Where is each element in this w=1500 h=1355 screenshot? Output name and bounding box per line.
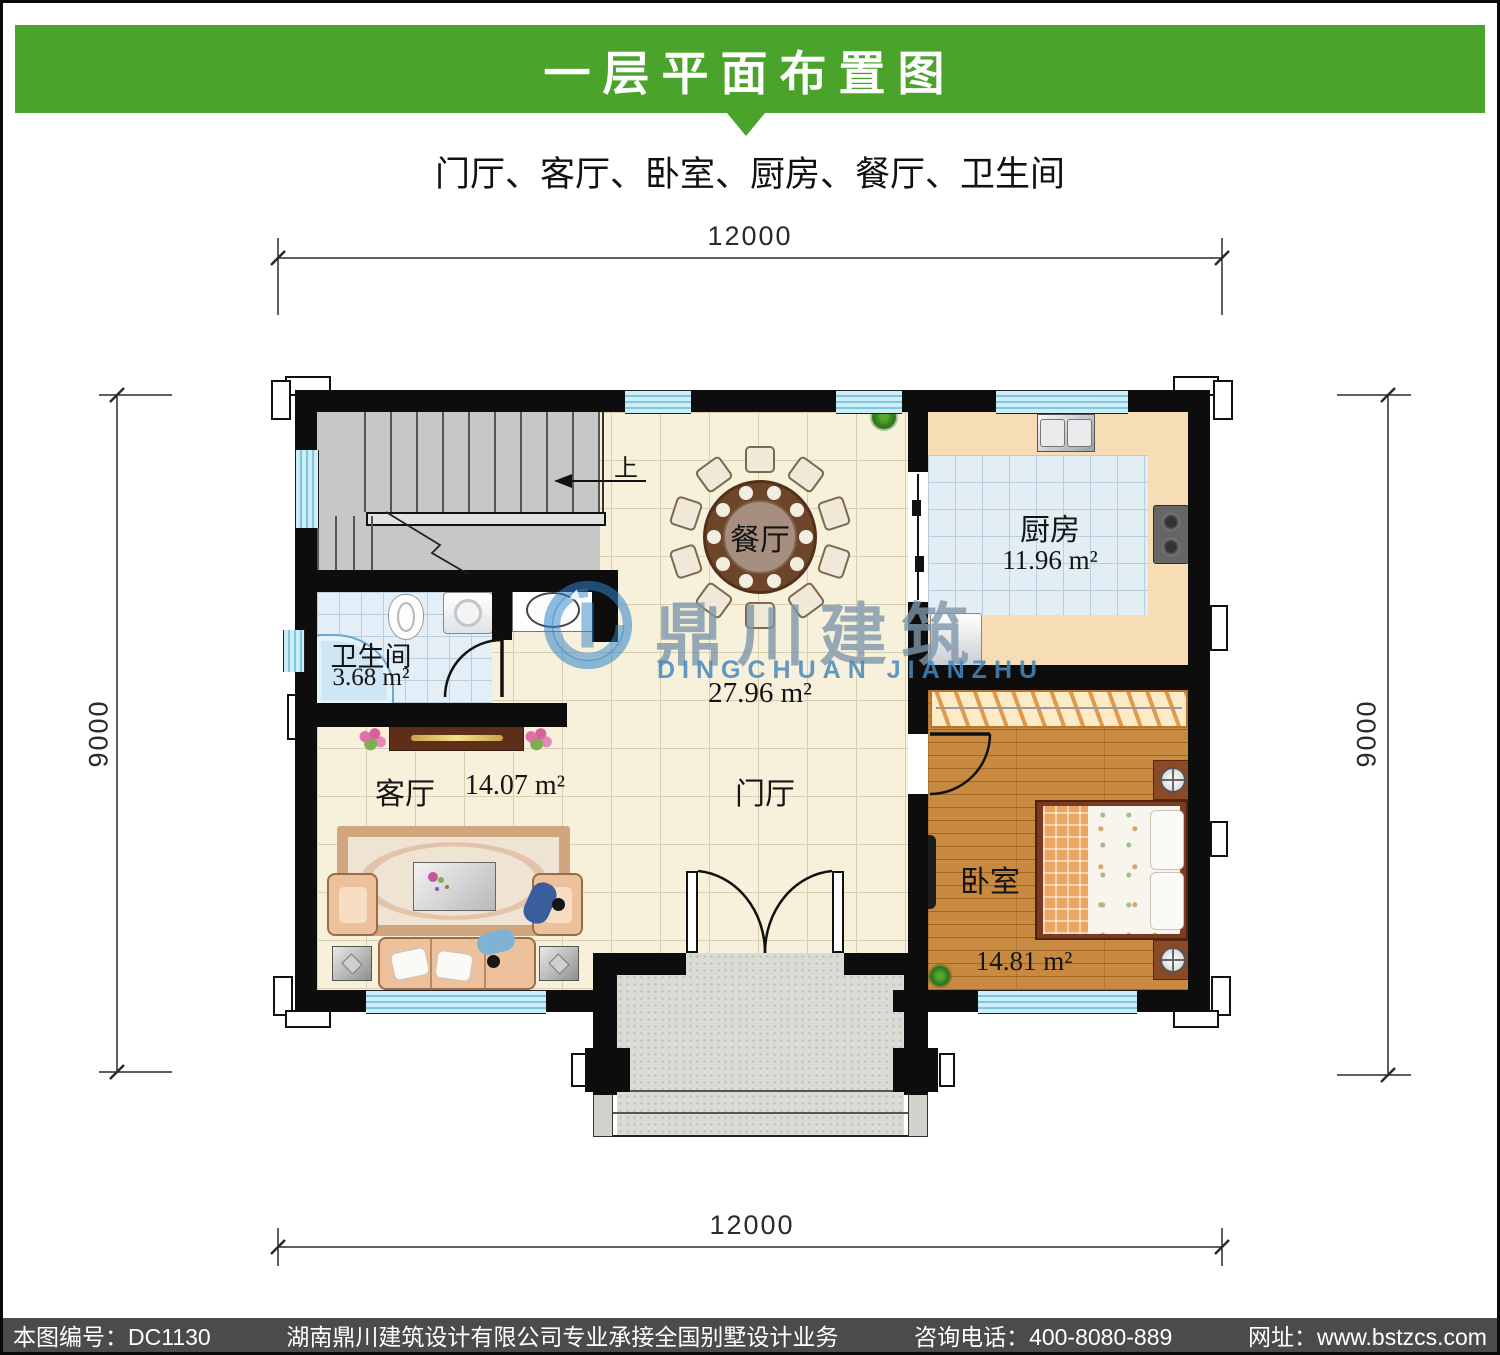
entry-door-leaf-left [686, 871, 698, 953]
kitchen-label: 厨房 [985, 505, 1115, 549]
sink-bowl-right [1067, 419, 1092, 447]
porch-column-right [893, 1048, 938, 1092]
banner-pointer-triangle [727, 113, 765, 136]
side-table-right-top [548, 953, 569, 974]
wardrobe-rail [936, 707, 1182, 709]
gas-stove [1153, 505, 1189, 564]
wall-kitchen-left-upper [908, 412, 928, 472]
stair-treads [364, 412, 604, 512]
armchair-left-cushion [339, 887, 367, 923]
hall-label: 门厅 [715, 769, 815, 813]
footer-website: 网址：www.bstzcs.com [1248, 1318, 1487, 1352]
dimension-bottom: 12000 [652, 1210, 852, 1241]
porch-edge [613, 1135, 908, 1137]
column-marker-right [939, 1053, 955, 1087]
person-armchair-head [552, 898, 565, 911]
title-banner: 一层平面布置图 [15, 25, 1485, 113]
sink-bowl-left [1040, 419, 1065, 447]
kitchen-slider [912, 474, 924, 600]
lamp-bottom [1160, 947, 1186, 973]
corner-marker-br-h [1173, 1010, 1219, 1028]
pillow-2 [1150, 872, 1184, 930]
person-sofa-head [487, 955, 500, 968]
window-top-2 [836, 390, 902, 414]
coffee-table-decor [428, 872, 438, 882]
wall-right [1188, 390, 1210, 1012]
toilet-bowl [397, 602, 415, 632]
frame-marker-right-2 [1210, 821, 1228, 857]
stove-burner-2 [1161, 537, 1181, 557]
tv-screen [411, 735, 503, 741]
wall-living-top [317, 703, 567, 727]
kitchen-area: 11.96 m² [985, 545, 1115, 576]
dimension-right: 9000 [1352, 634, 1383, 834]
bedroom-area: 14.81 m² [954, 946, 1094, 977]
window-top-1 [625, 390, 691, 414]
wall-kitchen-bedroom [908, 665, 1210, 690]
dimension-top: 12000 [650, 221, 850, 252]
page-subtitle: 门厅、客厅、卧室、厨房、餐厅、卫生间 [0, 146, 1500, 197]
window-left-bathroom [283, 630, 305, 672]
hall-area: 27.96 m² [690, 677, 830, 710]
frame-marker-right-1 [1210, 605, 1228, 651]
dining-chair [745, 602, 775, 629]
entry-door-leaf-right [832, 871, 844, 953]
nightstand-top [1153, 760, 1192, 800]
corner-marker-tl-v [271, 380, 291, 420]
living-area: 14.07 m² [445, 770, 585, 802]
living-label: 客厅 [355, 769, 455, 813]
refrigerator [930, 613, 982, 667]
washing-machine [443, 592, 493, 634]
side-table-right [539, 946, 579, 981]
wash-basin [526, 592, 580, 628]
wardrobe [930, 690, 1188, 728]
corner-marker-bl-h [285, 1010, 331, 1028]
bedroom-label: 卧室 [940, 857, 1040, 901]
side-table-left-top [341, 953, 362, 974]
tv-cabinet [389, 725, 524, 751]
kitchen-sink [1037, 414, 1095, 452]
washer-door [454, 599, 482, 627]
entry-porch [617, 953, 904, 1137]
pillow-1 [1150, 810, 1184, 870]
window-left-stairs [295, 450, 319, 528]
armchair-left [327, 873, 378, 936]
coffee-table [413, 862, 496, 911]
corner-marker-tr-v [1213, 380, 1233, 420]
window-bottom-living [366, 990, 546, 1014]
wall-bathroom-top [317, 570, 618, 592]
window-bottom-bedroom [978, 990, 1137, 1014]
wall-bathroom-right [492, 592, 512, 640]
footer-drawing-no: 本图编号：DC1130 [13, 1318, 211, 1352]
pillar-basin [592, 592, 618, 642]
dining-table-center: 餐厅 [723, 500, 797, 574]
window-top-kitchen [996, 390, 1128, 414]
flower-left [358, 727, 386, 751]
stair-railing [366, 512, 606, 526]
nightstand-bottom [1153, 940, 1192, 980]
dimension-left: 9000 [84, 634, 115, 834]
flower-right [524, 727, 552, 751]
bed-blanket [1043, 806, 1088, 934]
side-table-left [332, 946, 372, 981]
stove-burner-1 [1161, 512, 1181, 532]
floor-plan-page: 一层平面布置图 门厅、客厅、卧室、厨房、餐厅、卫生间 12000 12000 9… [0, 0, 1500, 1355]
footer-bar: 本图编号：DC1130 湖南鼎川建筑设计有限公司专业承接全国别墅设计业务 咨询电… [3, 1318, 1497, 1352]
wall-bedroom-left-upper [908, 690, 928, 734]
squat-toilet [388, 594, 424, 640]
porch-step-1 [613, 1090, 908, 1092]
dining-chair [745, 446, 775, 473]
porch-step-2 [613, 1112, 908, 1114]
porch-column-left [585, 1048, 630, 1092]
dining-room-label: 餐厅 [730, 515, 790, 559]
bedroom-plant [930, 966, 950, 986]
page-title: 一层平面布置图 [544, 35, 957, 104]
bathroom-area: 3.68 m² [311, 664, 431, 692]
stair-lower-flight [317, 516, 373, 570]
lamp-top [1160, 767, 1186, 793]
footer-phone: 咨询电话：400-8080-889 [914, 1318, 1172, 1352]
stairs-up-label: 上 [612, 448, 640, 483]
footer-company: 湖南鼎川建筑设计有限公司专业承接全国别墅设计业务 [286, 1318, 838, 1352]
sofa-cushion-2 [434, 950, 474, 983]
